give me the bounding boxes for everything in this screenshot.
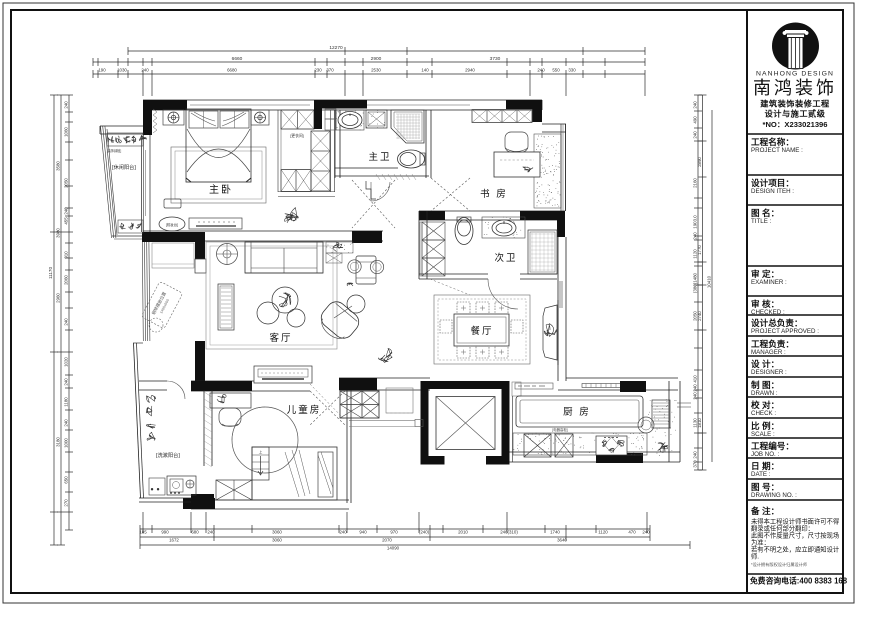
svg-text:680: 680 [191, 530, 199, 535]
svg-text:(240): (240) [419, 530, 430, 535]
svg-text:1000: 1000 [64, 438, 69, 448]
svg-text:NANHONG DESIGN: NANHONG DESIGN [756, 71, 834, 78]
svg-text:650: 650 [64, 476, 69, 484]
svg-text:490: 490 [693, 116, 698, 124]
svg-text:设计与施工贰级: 设计与施工贰级 [765, 109, 826, 119]
svg-text:3060: 3060 [272, 538, 282, 543]
svg-text:410: 410 [693, 375, 698, 383]
svg-text:儿童房: 儿童房 [287, 404, 322, 416]
svg-text:翻录或任何部分翻印：: 翻录或任何部分翻印： [751, 524, 814, 533]
svg-text:DATE :: DATE : [751, 471, 771, 478]
svg-text:240: 240 [537, 68, 545, 73]
svg-text:MANAGER :: MANAGER : [751, 349, 786, 356]
svg-text:未得本工程设计师书面许可不得: 未得本工程设计师书面许可不得 [751, 517, 839, 526]
svg-text:为准：: 为准： [751, 538, 770, 547]
svg-text:设计项目：: 设计项目： [751, 177, 794, 188]
svg-text:330: 330 [568, 68, 576, 73]
svg-text:2010: 2010 [458, 530, 468, 535]
svg-text:550: 550 [552, 68, 560, 73]
svg-text:1903.0: 1903.0 [693, 215, 698, 229]
svg-text:1030: 1030 [117, 68, 127, 73]
svg-text:师.: 师. [751, 552, 759, 561]
svg-text:*NO：X233021396: *NO：X233021396 [762, 120, 827, 129]
svg-text:[装饰绿植]: [装饰绿植] [107, 148, 122, 153]
svg-text:书 房: 书 房 [480, 188, 508, 200]
svg-text:校 对：: 校 对： [751, 399, 779, 410]
svg-text:TITLE :: TITLE : [751, 218, 772, 225]
svg-text:240: 240 [693, 101, 698, 109]
svg-text:246(310): 246(310) [500, 530, 518, 535]
svg-text:免费咨询电话:400 8383 168: 免费咨询电话:400 8383 168 [750, 576, 848, 586]
svg-text:240: 240 [64, 318, 69, 326]
svg-text:140: 140 [421, 68, 429, 73]
svg-text:240: 240 [693, 384, 698, 392]
svg-text:3180: 3180 [56, 437, 61, 447]
svg-text:230: 230 [314, 68, 322, 73]
svg-text:主卫: 主卫 [368, 151, 391, 163]
svg-text:餐厅: 餐厅 [470, 325, 493, 337]
svg-text:1060: 1060 [64, 127, 69, 137]
svg-text:1020: 1020 [64, 357, 69, 367]
svg-text:1180: 1180 [64, 397, 69, 407]
svg-text:910: 910 [64, 251, 69, 259]
svg-text:日 期：: 日 期： [751, 460, 779, 471]
svg-text:185: 185 [139, 530, 147, 535]
svg-text:10410: 10410 [707, 275, 712, 288]
svg-text:SCALE :: SCALE : [751, 431, 775, 438]
svg-text:3730: 3730 [490, 56, 501, 62]
svg-text:[梳妆台]: [梳妆台] [166, 222, 178, 227]
svg-text:11170: 11170 [48, 267, 53, 280]
svg-text:2960: 2960 [56, 293, 61, 303]
svg-text:2060: 2060 [64, 275, 69, 285]
svg-text:DESIGNER :: DESIGNER : [751, 369, 787, 376]
svg-text:240: 240 [339, 530, 347, 535]
svg-text:上: 上 [259, 450, 263, 455]
svg-text:此图不作度量尺寸，尺寸按现场: 此图不作度量尺寸，尺寸按现场 [751, 531, 839, 540]
svg-text:240: 240 [207, 530, 215, 535]
svg-text:南鸿装饰: 南鸿装饰 [753, 78, 837, 98]
svg-text:建筑装饰装修工程: 建筑装饰装修工程 [760, 99, 830, 109]
svg-text:工程编号：: 工程编号： [751, 440, 794, 451]
svg-text:240: 240 [642, 530, 650, 535]
svg-text:制 图：: 制 图： [751, 379, 779, 390]
svg-text:[休闲阳台]: [休闲阳台] [112, 163, 136, 171]
svg-text:次卫: 次卫 [494, 252, 517, 264]
svg-text:240: 240 [693, 392, 698, 400]
svg-text:12270: 12270 [329, 45, 343, 51]
svg-text:厨 房: 厨 房 [563, 406, 591, 418]
svg-text:[洗漱阳台]: [洗漱阳台] [156, 451, 180, 459]
svg-text:工程负责：: 工程负责： [751, 338, 794, 349]
svg-text:3060: 3060 [272, 530, 282, 535]
svg-text:2900: 2900 [371, 56, 382, 62]
svg-text:2050: 2050 [64, 178, 69, 188]
svg-text:2740: 2740 [697, 311, 702, 321]
svg-text:2530: 2530 [371, 68, 381, 73]
svg-text:240: 240 [64, 207, 69, 215]
svg-text:*设计拥有版权设计归属设计师: *设计拥有版权设计归属设计师 [751, 561, 807, 568]
svg-text:备 注：: 备 注： [750, 505, 779, 516]
svg-text:[电器高柜]: [电器高柜] [552, 427, 568, 432]
svg-text:940: 940 [359, 530, 367, 535]
svg-text:DESIGN ITEH :: DESIGN ITEH : [751, 188, 794, 195]
svg-text:设 计：: 设 计： [751, 358, 779, 369]
svg-text:3580: 3580 [56, 161, 61, 171]
svg-text:370: 370 [326, 68, 334, 73]
svg-text:DRAWING NO. :: DRAWING NO. : [751, 492, 797, 499]
svg-text:PROJECT NAME :: PROJECT NAME : [751, 147, 803, 154]
svg-text:1810: 1810 [697, 418, 702, 428]
svg-text:1770: 1770 [697, 245, 702, 255]
svg-text:2070: 2070 [382, 538, 392, 543]
svg-text:970: 970 [390, 530, 398, 535]
svg-text:若有不明之处，应立即通知设计: 若有不明之处，应立即通知设计 [751, 545, 840, 554]
svg-text:审 定：: 审 定： [751, 268, 779, 279]
svg-text:2160: 2160 [693, 178, 698, 188]
svg-text:6660: 6660 [232, 56, 243, 62]
svg-text:审 核：: 审 核： [751, 298, 779, 309]
svg-text:6680: 6680 [227, 68, 237, 73]
svg-text:图 号：: 图 号： [751, 482, 779, 492]
svg-text:370: 370 [693, 460, 698, 468]
svg-text:3980: 3980 [56, 228, 61, 238]
svg-text:工程名称：: 工程名称： [751, 136, 794, 147]
svg-text:240: 240 [693, 131, 698, 139]
svg-text:240: 240 [64, 101, 69, 109]
svg-text:455: 455 [64, 217, 69, 225]
svg-text:[更衣间]: [更衣间] [290, 133, 304, 138]
svg-text:EXAMINER :: EXAMINER : [751, 279, 787, 286]
svg-text:图 名：: 图 名： [751, 207, 779, 218]
svg-text:3640: 3640 [557, 538, 567, 543]
svg-text:客厅: 客厅 [269, 332, 292, 344]
svg-text:240: 240 [64, 419, 69, 427]
svg-text:1672: 1672 [169, 538, 179, 543]
svg-text:比 例：: 比 例： [751, 420, 779, 431]
svg-text:2940: 2940 [465, 68, 475, 73]
svg-text:1120: 1120 [598, 530, 608, 535]
svg-text:190: 190 [98, 68, 106, 73]
svg-text:470: 470 [628, 530, 636, 535]
svg-text:DRAWN :: DRAWN : [751, 390, 778, 397]
svg-text:240: 240 [693, 451, 698, 459]
svg-text:主卧: 主卧 [209, 183, 233, 196]
svg-text:JOB NO. :: JOB NO. : [751, 451, 779, 458]
svg-text:CHECK :: CHECK : [751, 410, 776, 417]
svg-text:990: 990 [161, 530, 169, 535]
svg-text:2890: 2890 [697, 157, 702, 167]
svg-text:14090: 14090 [387, 546, 400, 551]
svg-text:1740: 1740 [550, 530, 560, 535]
svg-text:240: 240 [64, 378, 69, 386]
svg-text:270: 270 [64, 499, 69, 507]
svg-text:(380)1480: (380)1480 [693, 272, 698, 293]
svg-text:设计总负责：: 设计总负责： [751, 317, 803, 328]
svg-text:PROJECT APPROVED :: PROJECT APPROVED : [751, 328, 819, 335]
svg-text:240: 240 [141, 68, 149, 73]
svg-text:240: 240 [693, 232, 698, 240]
